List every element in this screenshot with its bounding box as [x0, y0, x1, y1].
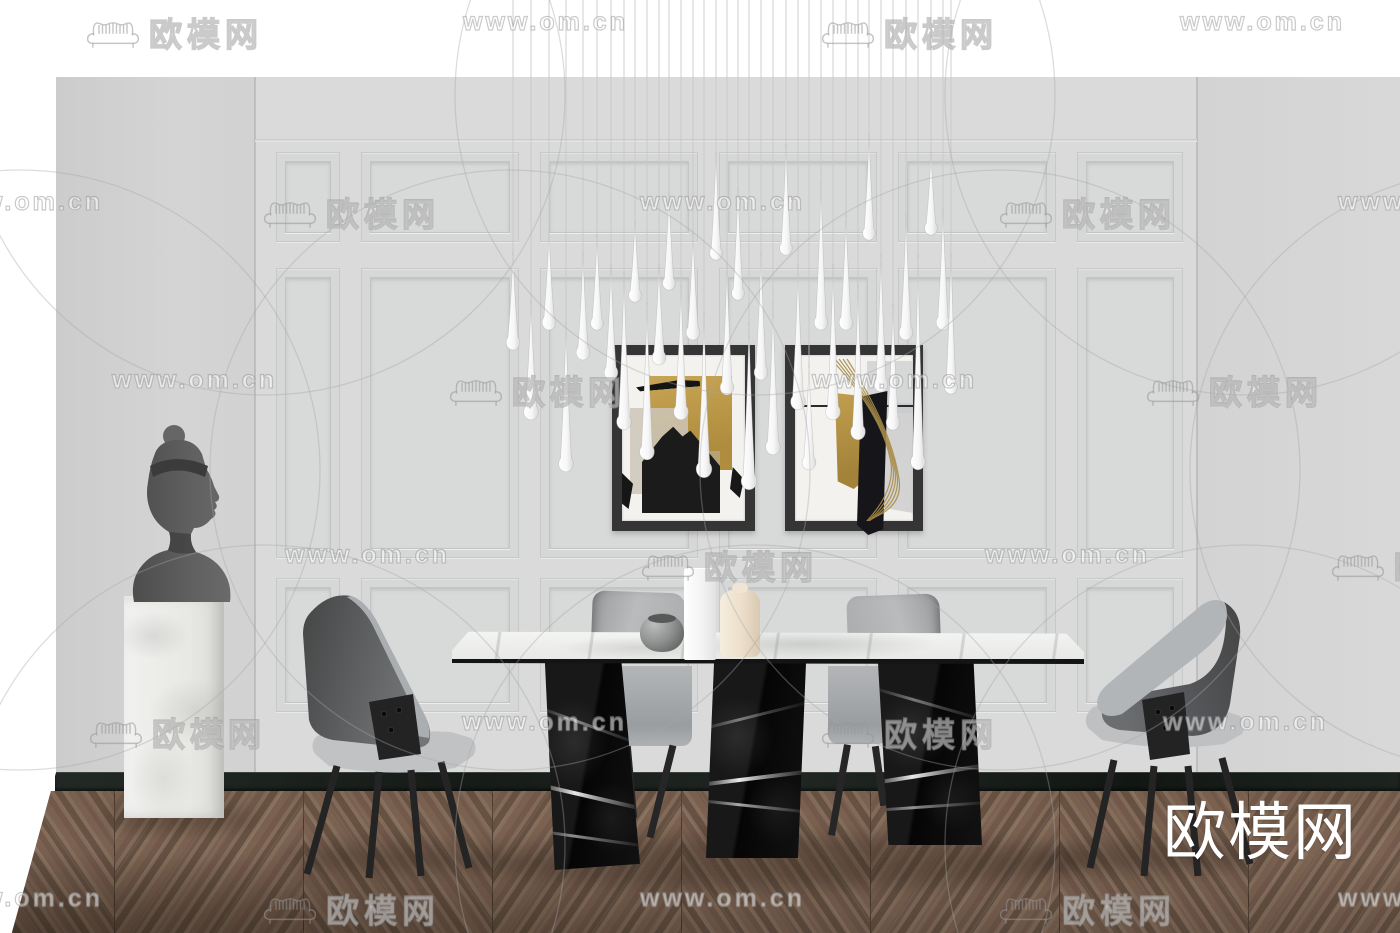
round-bowl-vase	[640, 613, 684, 652]
ceiling-area	[0, 0, 1400, 77]
wall-corner-left	[254, 77, 256, 772]
white-cylinder-vase	[684, 568, 716, 660]
chair-legs	[307, 762, 469, 878]
wall-panel-field	[907, 277, 1047, 549]
dining-chair-left	[283, 588, 488, 880]
abstract-artwork-left	[612, 345, 755, 531]
wall-groove-line	[255, 139, 1197, 142]
marble-pedestal	[124, 596, 224, 818]
wall-panel-field	[285, 277, 331, 549]
wall-panel	[276, 152, 340, 242]
wall-panel	[1077, 152, 1183, 242]
site-logo-text: 欧模网	[1163, 782, 1358, 873]
interior-render: 欧模网www.om.cn 欧模网www.om.cnwww.om.cn 欧模网ww…	[0, 0, 1400, 933]
cream-jar-vase	[720, 590, 760, 657]
wall-panel-field	[285, 161, 331, 233]
room-corner-opening	[0, 0, 56, 933]
wall-panel	[361, 152, 519, 242]
wall-panel-field	[1086, 277, 1174, 549]
wall-panel	[719, 152, 877, 242]
wall-panel-field	[728, 161, 868, 233]
table-leg-marble	[878, 663, 982, 845]
wall-panel	[361, 268, 519, 558]
table-leg-marble	[706, 663, 806, 858]
wall-panel-field	[907, 161, 1047, 233]
wall-panel	[898, 152, 1056, 242]
wall-panel-field	[370, 161, 510, 233]
dining-chair-seat-center-left	[622, 666, 692, 746]
wall-panel	[1077, 268, 1183, 558]
wall-panel-field	[549, 161, 689, 233]
wall-panel-field	[370, 277, 510, 549]
abstract-artwork-right	[785, 345, 923, 531]
female-bust-sculpture	[128, 422, 238, 607]
art-gold-lines	[795, 355, 913, 521]
wall-panel	[540, 152, 698, 242]
art-black-blob	[730, 467, 744, 498]
wall-panel	[276, 268, 340, 558]
wall-panel-field	[1086, 161, 1174, 233]
